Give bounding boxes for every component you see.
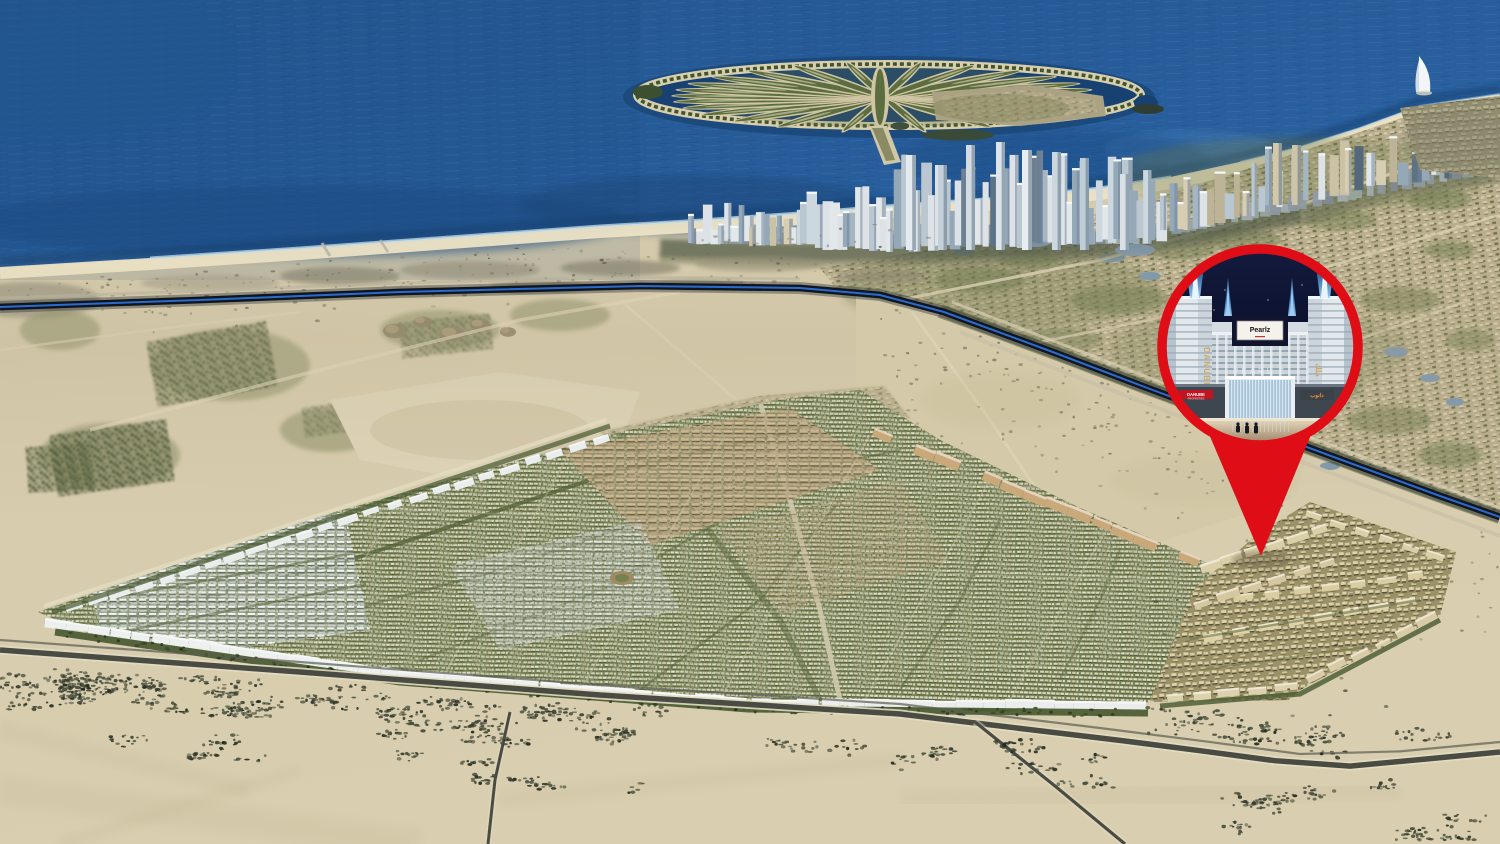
- svg-text:Pearlz: Pearlz: [1250, 327, 1271, 334]
- svg-text:DANUBE: DANUBE: [1187, 392, 1205, 397]
- svg-text:دانوب: دانوب: [1310, 392, 1324, 399]
- svg-text:ملك: ملك: [1314, 363, 1323, 377]
- svg-text:PROPERTIES: PROPERTIES: [1188, 397, 1205, 401]
- svg-text:PEARL Z: PEARL Z: [1233, 367, 1287, 376]
- svg-text:DANUBE: DANUBE: [1202, 347, 1211, 388]
